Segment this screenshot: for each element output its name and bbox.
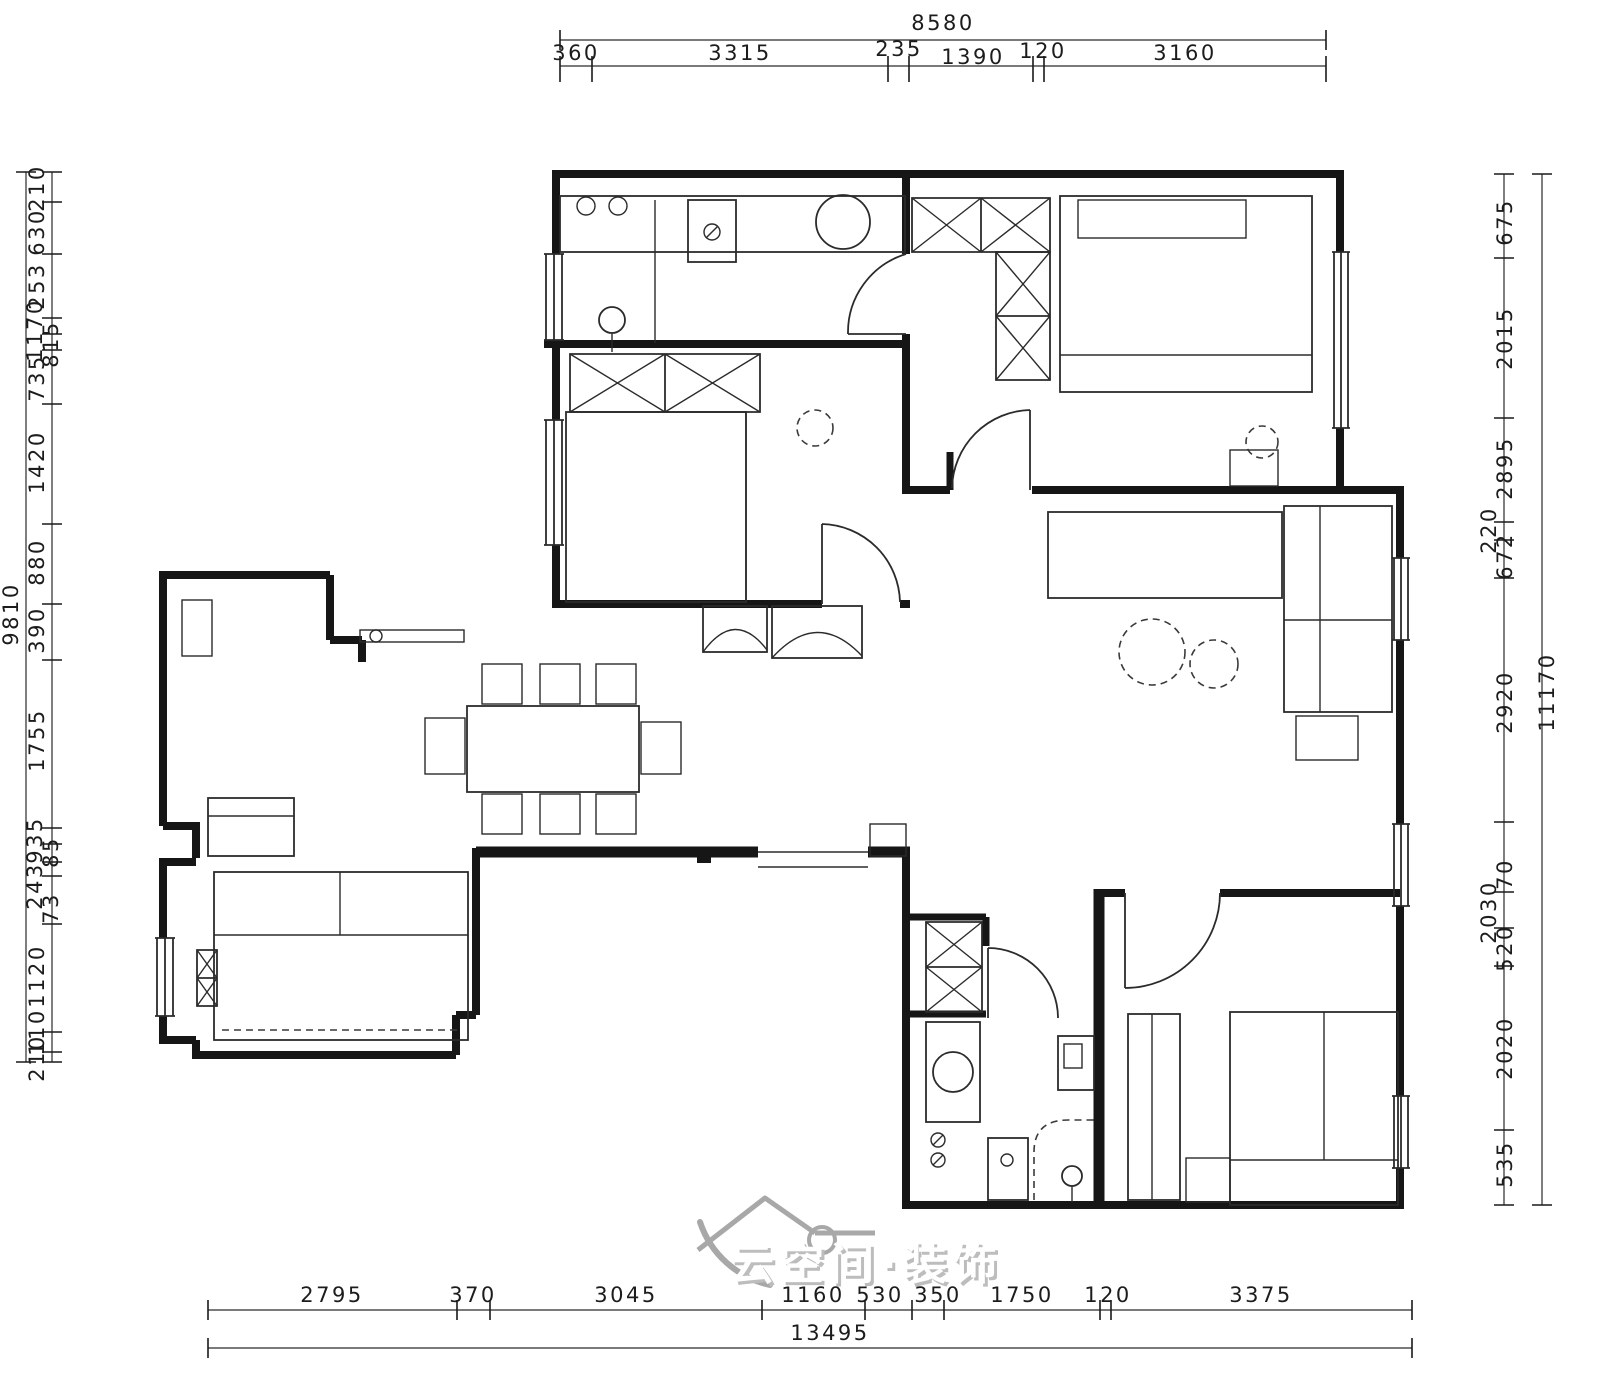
dim-top-seg5: 3160 xyxy=(1153,41,1216,65)
dim-right-seg8: 520 xyxy=(1493,924,1517,972)
ceiling-light xyxy=(797,410,833,446)
door-bedroom1 xyxy=(952,410,1030,490)
lamp xyxy=(1246,426,1278,458)
dim-top-seg3: 1390 xyxy=(941,45,1004,69)
kitchen-counter xyxy=(560,196,905,252)
bedroom3 xyxy=(1128,1012,1398,1205)
wardrobe-bedroom2 xyxy=(570,354,760,412)
dim-right-seg10: 535 xyxy=(1493,1140,1517,1188)
dim-left-seg9: 1755 xyxy=(25,708,49,771)
chair xyxy=(540,794,580,834)
dining-table xyxy=(467,706,639,792)
window-bedroom3-right xyxy=(1392,1096,1410,1168)
dim-right-seg1: 2015 xyxy=(1493,306,1517,369)
dim-left-seg16: 210 xyxy=(25,1034,49,1082)
toilet xyxy=(988,1138,1028,1200)
dim-left-seg1: 630 xyxy=(25,208,49,256)
dim-bottom-seg7: 120 xyxy=(1084,1283,1132,1307)
dim-chain-left: 210 630 253 1170 815 735 1420 880 390 17… xyxy=(0,164,63,1082)
dim-right-seg9: 2020 xyxy=(1493,1016,1517,1079)
chair xyxy=(641,722,681,774)
dim-right-seg0: 675 xyxy=(1493,198,1517,246)
dim-chain-right: 675 2015 2895 220 672 2920 70 2030 520 2… xyxy=(1477,174,1559,1205)
burner-icon xyxy=(577,197,595,215)
doors xyxy=(697,254,1220,1018)
dim-left-seg8: 390 xyxy=(25,606,49,654)
dim-top-seg0: 360 xyxy=(552,41,600,65)
dim-bottom-total: 13495 xyxy=(790,1321,869,1345)
dim-left-total: 9810 xyxy=(0,582,23,645)
dim-right-total: 11170 xyxy=(1535,652,1559,731)
dining-area xyxy=(360,630,681,834)
dim-left-seg6: 1420 xyxy=(25,430,49,493)
bed xyxy=(566,412,746,602)
chair xyxy=(482,794,522,834)
basin-icon xyxy=(1062,1166,1082,1186)
door-bedroom2 xyxy=(822,524,900,604)
washing-machine xyxy=(926,1022,980,1122)
chair xyxy=(482,664,522,704)
dim-left-seg7: 880 xyxy=(25,538,49,586)
door-bathroom xyxy=(988,948,1058,1018)
kitchen xyxy=(560,195,905,352)
door-bedroom3 xyxy=(1125,893,1220,988)
dim-chain-bottom: 2795 370 3045 1160 530 350 1750 120 3375… xyxy=(208,1283,1412,1358)
round-table xyxy=(1119,619,1185,685)
dim-left-seg5: 735 xyxy=(25,354,49,402)
side-table xyxy=(1296,716,1358,760)
floor-plan-page: 8580 360 3315 235 1390 120 3160 2795 370… xyxy=(0,0,1600,1373)
entry-step xyxy=(182,600,212,656)
console xyxy=(360,630,464,642)
dim-right-seg2: 2895 xyxy=(1493,436,1517,499)
chair xyxy=(540,664,580,704)
faucet-icon xyxy=(599,307,625,333)
dim-left-seg14: 1120 xyxy=(25,944,49,1007)
dim-top-seg1: 3315 xyxy=(708,41,771,65)
kitchen-sink-icon xyxy=(816,195,870,249)
watermark-logo: 云空间·装饰 云空间·装饰 xyxy=(698,1198,1006,1293)
chair xyxy=(596,794,636,834)
cabinet xyxy=(1048,512,1282,598)
wardrobe-strip xyxy=(1128,1014,1180,1200)
dim-left-seg0: 210 xyxy=(25,164,49,212)
entry-marker xyxy=(697,849,711,863)
dim-bottom-seg2: 3045 xyxy=(594,1283,657,1307)
window-living-right-2 xyxy=(1392,824,1410,906)
window-living-right-1 xyxy=(1392,558,1410,640)
dim-chain-top: 8580 360 3315 235 1390 120 3160 xyxy=(552,11,1326,82)
dim-bottom-seg1: 370 xyxy=(449,1283,497,1307)
dim-top-seg2: 235 xyxy=(875,37,923,61)
round-stool xyxy=(1190,640,1238,688)
door-kitchen xyxy=(848,254,906,334)
window-bedroom2-left xyxy=(544,420,564,545)
window-kitchen-left xyxy=(544,254,564,340)
living-room xyxy=(870,506,1392,856)
armchair xyxy=(208,798,294,856)
nightstand xyxy=(1186,1158,1230,1202)
wardrobe-bathroom xyxy=(926,922,982,1012)
burner-icon xyxy=(609,197,627,215)
shower-area xyxy=(1034,1120,1094,1200)
dim-top-total: 8580 xyxy=(911,11,974,35)
bedroom1 xyxy=(1060,196,1312,486)
dim-bottom-seg8: 3375 xyxy=(1229,1283,1292,1307)
dim-left-seg13: 73 xyxy=(39,892,63,924)
wardrobe-bedroom1 xyxy=(912,198,1050,380)
floor-plan-canvas: 8580 360 3315 235 1390 120 3160 2795 370… xyxy=(0,0,1600,1373)
sectional-sofa xyxy=(214,872,468,1040)
bed xyxy=(1230,1012,1398,1205)
sofa xyxy=(1284,506,1392,712)
dim-top-seg4: 120 xyxy=(1019,39,1067,63)
walls xyxy=(163,170,1404,1209)
bed xyxy=(1060,196,1312,392)
bedroom2 xyxy=(566,410,862,658)
window-bedroom1-right xyxy=(1332,252,1350,428)
chair xyxy=(425,718,465,774)
bathroom xyxy=(926,1022,1094,1202)
watermark-text: 云空间·装饰 xyxy=(730,1239,1003,1290)
dim-right-seg5: 2920 xyxy=(1493,670,1517,733)
dim-right-seg4: 672 xyxy=(1493,532,1517,580)
window-living-left xyxy=(155,938,175,1016)
dim-bottom-seg0: 2795 xyxy=(300,1283,363,1307)
pillow xyxy=(1078,200,1246,238)
chair xyxy=(596,664,636,704)
lounge-left xyxy=(182,600,468,1040)
